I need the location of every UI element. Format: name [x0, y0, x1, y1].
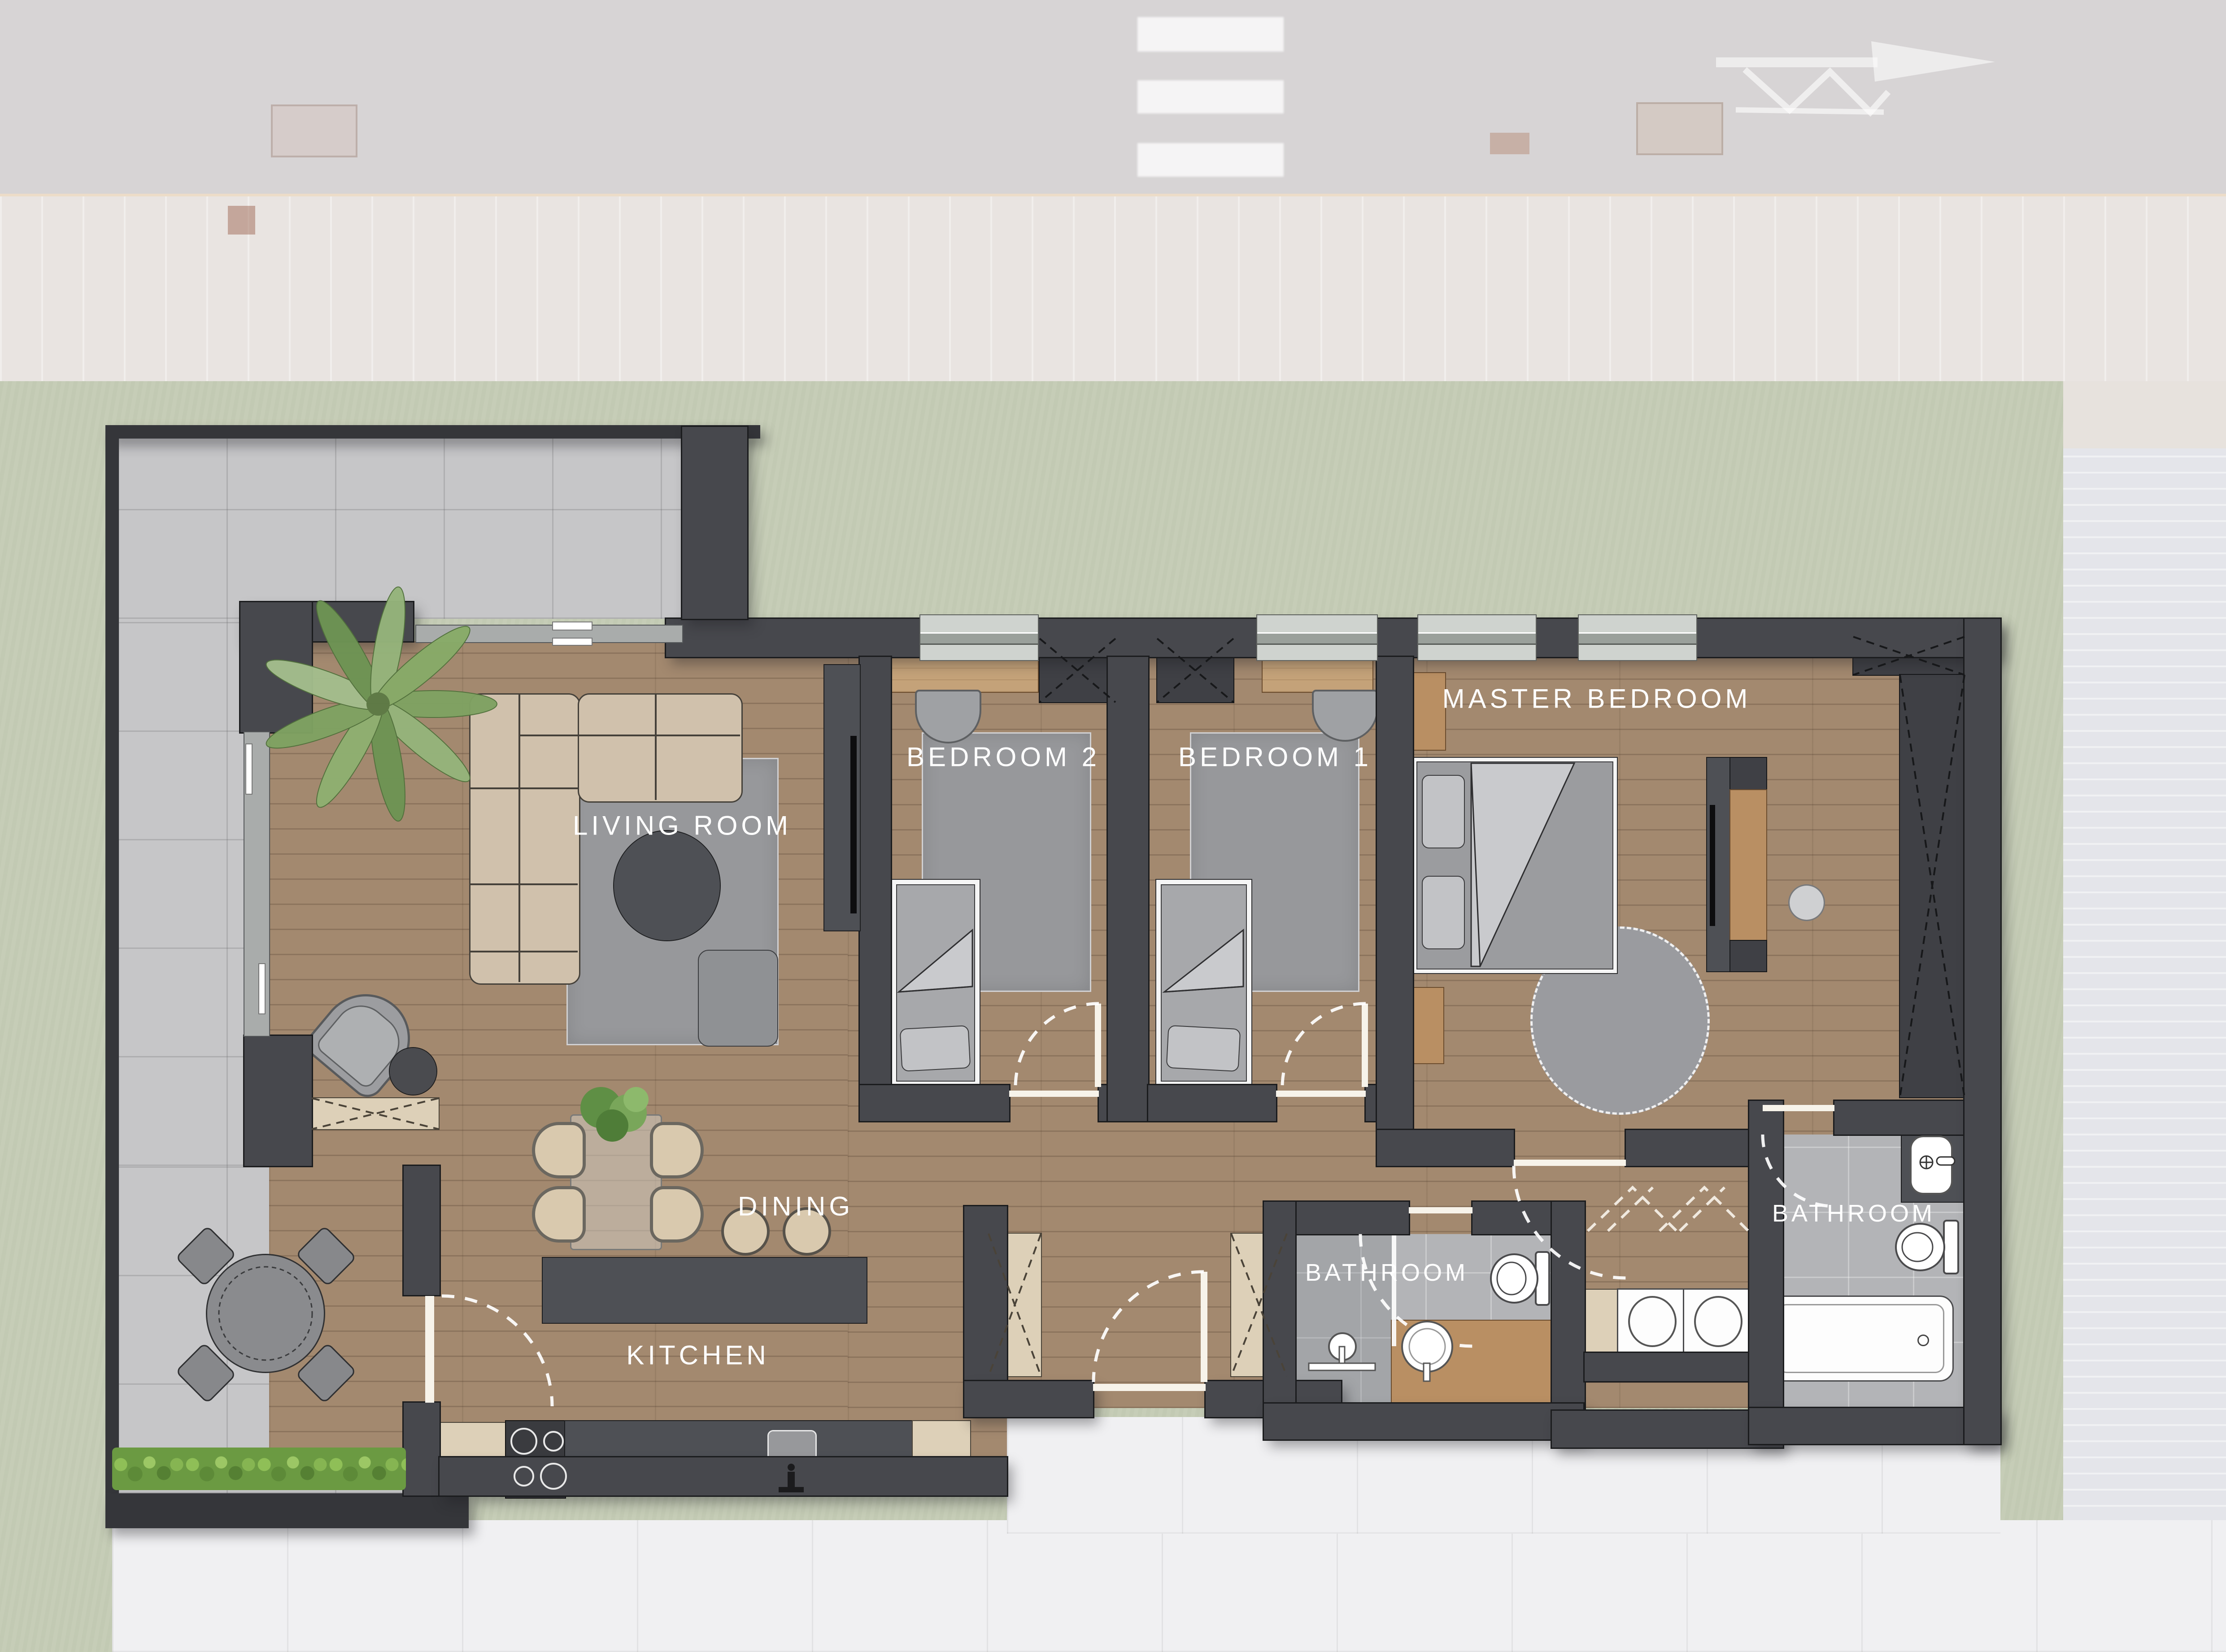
site-paved-band	[0, 194, 2226, 385]
window-bedroom1	[1257, 615, 1377, 660]
terrace-top	[118, 438, 682, 619]
room-label-living-room: LIVING ROOM	[573, 810, 792, 841]
shower-glass	[1392, 1234, 1396, 1346]
console-cabinet	[312, 1098, 439, 1129]
wall-bathroom2-south	[1749, 1408, 2000, 1444]
wall-east	[1965, 619, 2000, 1444]
terrace-side	[118, 619, 244, 1166]
site-upper-band	[0, 0, 2226, 194]
sliding-door-living-north	[416, 626, 682, 642]
wall-bedroom2-south	[860, 1085, 1009, 1121]
wall-bedroom1-south	[1148, 1085, 1276, 1121]
room-label-master-bedroom: MASTER BEDROOM	[1442, 683, 1751, 714]
terrace-table	[207, 1255, 324, 1372]
wall-master-south	[1377, 1130, 1514, 1166]
bathroom2-vanity	[1902, 1135, 1965, 1202]
dining-chair	[532, 1122, 586, 1178]
nightstand-master	[1413, 673, 1445, 750]
tv-icon	[1710, 805, 1715, 926]
wall-laundry-south	[1552, 1411, 1783, 1448]
wall-bathroom1-south	[1264, 1404, 1583, 1439]
washing-machine	[1684, 1290, 1749, 1352]
laundry-cabinet	[1585, 1290, 1618, 1352]
room-label-bathroom-small: BATHROOM	[1305, 1259, 1468, 1287]
sofa	[578, 693, 743, 803]
hallway-tiles	[112, 1520, 2226, 1652]
window-master-2	[1579, 615, 1696, 660]
crosswalk-mark	[1137, 143, 1284, 177]
floor-plan-canvas: LIVING ROOM BEDROOM 2 BEDROOM 1 MASTER B…	[0, 0, 2226, 1652]
faded-building-mark	[1490, 133, 1529, 154]
crosswalk-mark	[1137, 17, 1284, 52]
washing-machine	[1618, 1290, 1683, 1352]
site-right-strip	[2063, 381, 2226, 448]
faded-building-mark	[271, 104, 357, 157]
tv-icon	[850, 736, 857, 913]
terrace-wall	[105, 425, 119, 1528]
bathroom1-vanity	[1392, 1321, 1552, 1404]
tv-console-master	[1730, 790, 1766, 941]
dining-chair	[650, 1186, 704, 1243]
room-label-bedroom1: BEDROOM 1	[1178, 742, 1372, 773]
wall-kitchen-south	[440, 1457, 1007, 1495]
side-table	[390, 1048, 436, 1095]
wall-laundry-niche	[1585, 1353, 1749, 1381]
room-label-bathroom-main: BATHROOM	[1772, 1200, 1935, 1227]
wall-bathroom1-west	[1264, 1202, 1295, 1406]
wall-kitchen-west	[404, 1166, 440, 1295]
wardrobe-master	[1900, 675, 1965, 1097]
bed-bedroom1	[1156, 880, 1251, 1086]
sofa	[469, 693, 580, 985]
wall-entry-south	[964, 1381, 1093, 1417]
dining-chair	[532, 1186, 586, 1243]
stool-master	[1790, 886, 1824, 920]
wall-living-west	[244, 1036, 312, 1166]
faded-building-mark	[1636, 102, 1723, 155]
wall-bathroom2-west	[1749, 1101, 1783, 1444]
window-bedroom2	[920, 615, 1038, 660]
terrace-wall	[105, 1493, 469, 1528]
room-label-kitchen: KITCHEN	[626, 1340, 769, 1371]
bed-bedroom2	[892, 880, 980, 1086]
room-label-bedroom2: BEDROOM 2	[906, 742, 1100, 773]
kitchen-island	[543, 1258, 867, 1323]
hedge-icon	[112, 1448, 406, 1490]
terrace-wall	[105, 425, 760, 439]
site-right-pavement	[2063, 448, 2226, 1652]
room-label-dining: DINING	[738, 1191, 854, 1222]
wall-bedrooms-middle	[1108, 657, 1148, 1121]
crosswalk-mark	[1137, 80, 1284, 113]
bed-master	[1413, 758, 1617, 973]
wall-bedroom2-west	[860, 657, 891, 1085]
dining-chair	[650, 1122, 704, 1178]
nightstand-master	[1413, 988, 1443, 1063]
wall-nw-column	[682, 427, 747, 619]
wall-living-nw	[240, 602, 312, 732]
ottoman	[699, 951, 777, 1046]
coffee-table	[614, 831, 720, 940]
wall-kitchen-west	[404, 1403, 440, 1495]
window-master-1	[1418, 615, 1536, 660]
wall-master-west	[1377, 657, 1413, 1130]
bathtub	[1769, 1297, 1952, 1380]
faded-building-mark	[228, 206, 255, 235]
